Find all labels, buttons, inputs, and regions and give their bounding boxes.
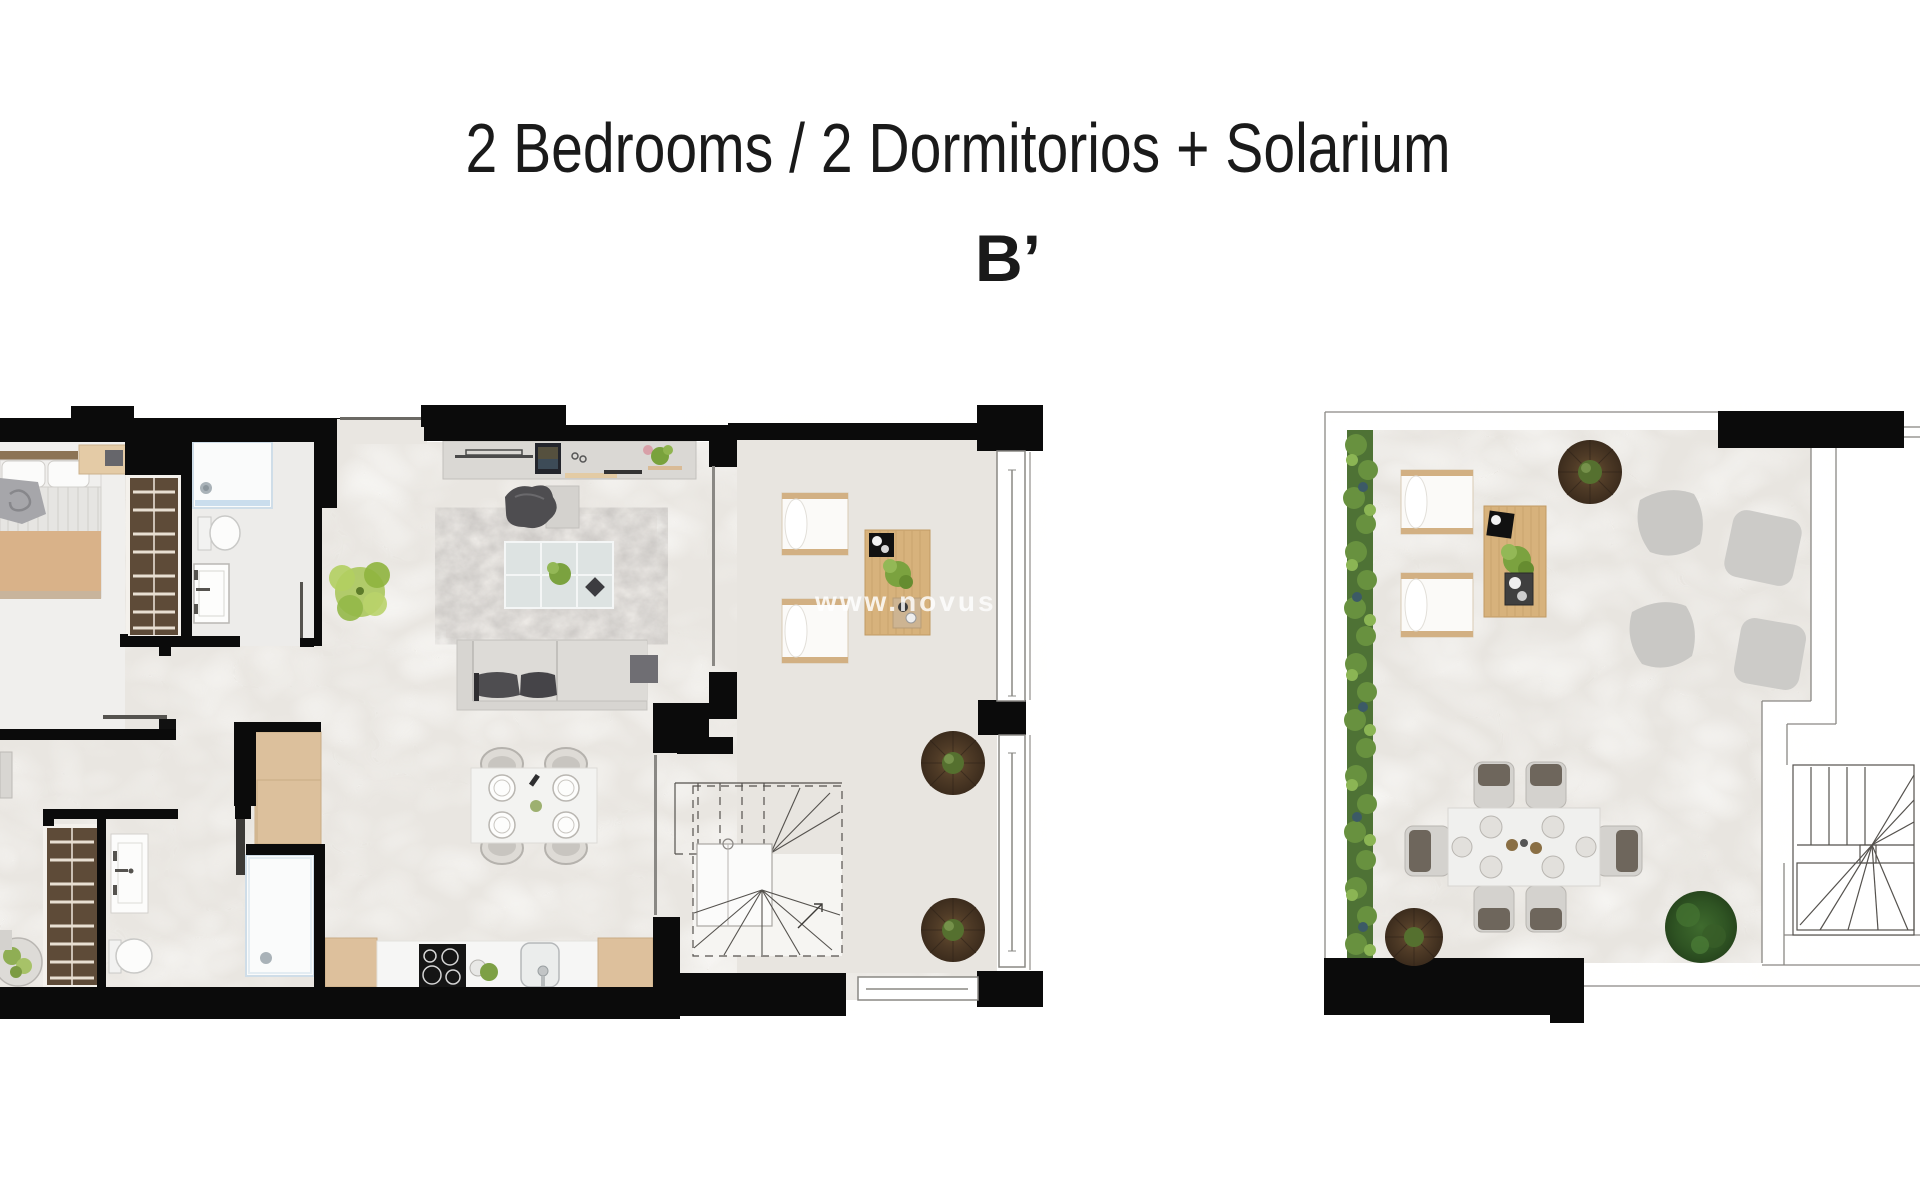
svg-text:2 Bedrooms / 2 Dormitorios + S: 2 Bedrooms / 2 Dormitorios + Solarium: [466, 109, 1451, 187]
svg-text:B’: B’: [975, 221, 1041, 295]
svg-text:www.novushabitat: www.novushabitat: [814, 586, 1109, 617]
